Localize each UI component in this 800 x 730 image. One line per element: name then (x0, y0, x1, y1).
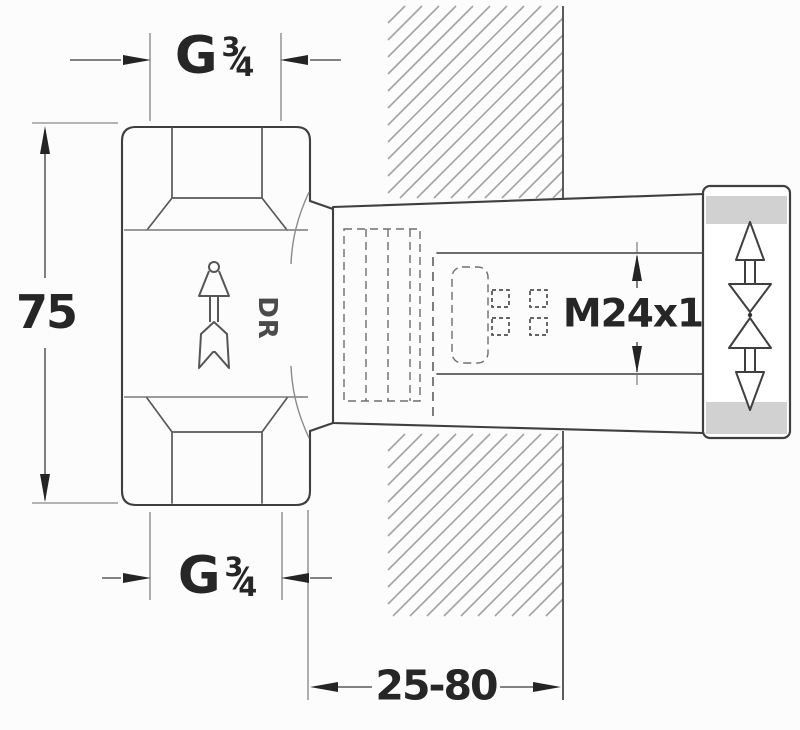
hatch-line (388, 6, 490, 108)
arrow-fletching (199, 322, 229, 368)
hatch-line (427, 480, 563, 616)
hatch-line (388, 18, 563, 193)
hatch-line (495, 548, 563, 616)
hatch-line (529, 582, 563, 616)
arrow-shaft (210, 296, 218, 322)
arrow-tip-knob (209, 262, 219, 272)
cap-band-bottom (706, 402, 787, 434)
fraction-denominator: 4 (235, 52, 253, 83)
hidden-thread-detail (344, 229, 547, 420)
extension-lines (150, 510, 308, 700)
hatch-line (388, 6, 422, 40)
arrow-head (199, 271, 229, 296)
valve-center-dot (748, 313, 752, 317)
dim-label-spindle-thread: M24x1 (563, 295, 703, 334)
hidden-thread-outline (344, 229, 420, 401)
hidden-spindle-flat (530, 290, 547, 307)
arrowhead-right-icon (533, 682, 561, 692)
hatch-line (388, 6, 405, 23)
arrowhead-down-icon (40, 474, 50, 502)
hatch-line (434, 69, 563, 198)
hatch-line (388, 6, 541, 159)
hatch-line (388, 434, 422, 468)
arrowhead-left-icon (281, 573, 309, 583)
hatch-line (388, 434, 456, 502)
body-sleeve-cone (310, 201, 333, 431)
hex-nut-top (147, 128, 287, 230)
hatch-line (388, 6, 456, 74)
hatch-line (388, 434, 490, 536)
arrowhead-left-icon (280, 55, 308, 65)
cap-band-top (706, 196, 787, 224)
body-shoulder-arcs (291, 192, 309, 438)
hatch-line (519, 154, 563, 198)
hatch-line (388, 434, 473, 519)
hatch-line (400, 35, 563, 198)
valve-installation-drawing (0, 0, 800, 730)
hatch-line (478, 531, 563, 616)
arrowhead-left-icon (310, 682, 338, 692)
dim-label-bottom-thread: G3⁄4 (178, 550, 256, 602)
dim-label-body-height: 75 (16, 289, 76, 335)
arrowhead-down-icon (632, 346, 642, 373)
hatch-line (388, 434, 524, 570)
arrowhead-up-icon (632, 254, 642, 281)
valve-body (122, 127, 333, 505)
hatch-line (388, 6, 524, 142)
arrowhead-right-icon (123, 573, 151, 583)
hatch-line (388, 434, 507, 553)
hatch-line (485, 120, 563, 198)
arrowhead-up-icon (40, 126, 50, 154)
thread-prefix: G (175, 26, 217, 86)
wall-hatch-upper (388, 6, 563, 198)
hidden-spindle-flat (530, 318, 547, 335)
hatch-line (388, 6, 473, 91)
technical-drawing-page: G3⁄4 G3⁄4 75 M24x1 25-80 DR (0, 0, 800, 730)
hatch-line (536, 171, 563, 198)
hatch-line (553, 188, 563, 198)
hatch-line (388, 6, 507, 125)
protective-cap (703, 186, 790, 438)
hidden-spindle-flat (492, 318, 509, 335)
hatch-line (546, 599, 563, 616)
hidden-thread-lines (366, 229, 410, 401)
thread-prefix: G (178, 546, 220, 606)
hatch-line (502, 137, 563, 198)
dim-label-mounting-depth: 25-80 (375, 666, 496, 707)
hatch-line (451, 86, 563, 198)
hatch-line (410, 463, 563, 616)
body-stamp-dr: DR (254, 296, 280, 340)
hatch-line (461, 514, 563, 616)
arrowhead-right-icon (123, 55, 151, 65)
hatch-line (388, 434, 541, 587)
wall-hatch-lower (388, 434, 563, 616)
hatch-line (388, 434, 405, 451)
fraction-denominator: 4 (238, 572, 256, 603)
hidden-cartridge (452, 267, 488, 363)
hatch-line (444, 497, 563, 616)
dim-label-top-thread: G3⁄4 (175, 30, 253, 82)
hidden-spindle-flat (492, 290, 509, 307)
flow-direction-arrow-icon (199, 262, 229, 368)
hex-nut-bottom (147, 398, 287, 503)
